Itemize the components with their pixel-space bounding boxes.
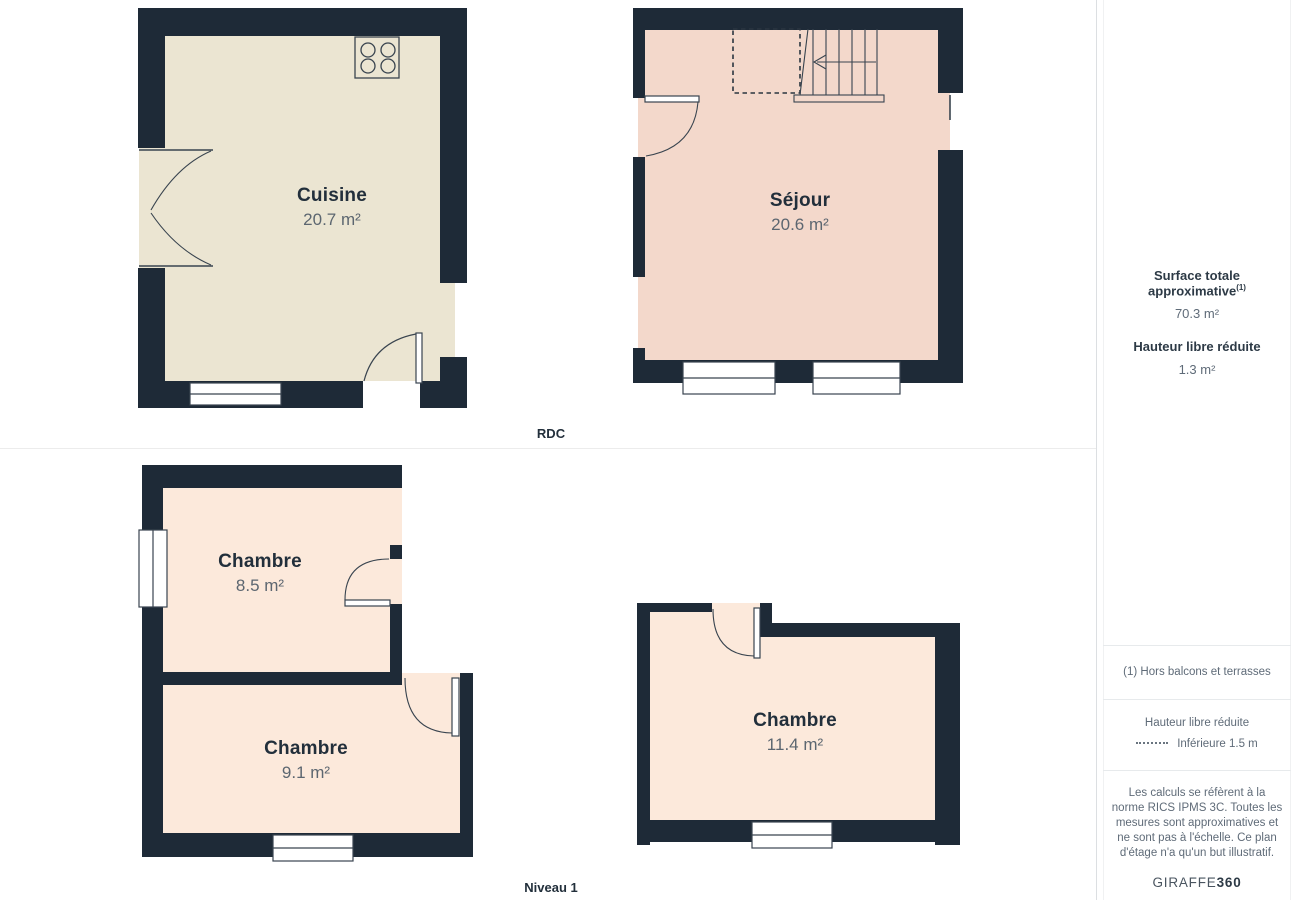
floorplan-page: Cuisine 20.7 m² Séjour 20.6 m² Chambre 8… [0, 0, 1300, 900]
divider [1103, 699, 1291, 700]
floor-section-divider [0, 448, 1097, 449]
brand-suffix: 360 [1217, 875, 1242, 890]
footnote-section: (1) Hors balcons et terrasses [1105, 666, 1289, 678]
floorplan-sejour [633, 8, 963, 394]
floor-caption-rdc: RDC [537, 426, 565, 441]
surface-total-value: 70.3 m² [1105, 306, 1289, 321]
window [139, 530, 167, 607]
floorplan-cuisine [138, 8, 467, 408]
divider [1103, 770, 1291, 771]
door-alcove [139, 148, 167, 268]
floorplans-canvas [0, 0, 1097, 900]
window [683, 362, 775, 394]
legend-row: Inférieure 1.5 m [1105, 738, 1289, 750]
floorplan-chambre-droite [637, 603, 960, 848]
surface-total-title: Surface totale approximative(1) [1105, 268, 1289, 298]
reduced-height-title: Hauteur libre réduite [1105, 339, 1289, 354]
disclaimer-section: Les calculs se réfèrent à la norme RICS … [1111, 786, 1283, 890]
summary-sidebar: Surface totale approximative(1) 70.3 m² … [1097, 0, 1300, 900]
footnote-text: (1) Hors balcons et terrasses [1105, 666, 1289, 678]
window [273, 835, 353, 861]
window [190, 383, 281, 405]
reduced-height-value: 1.3 m² [1105, 362, 1289, 377]
window [813, 362, 900, 394]
reduced-height-dotted-line-icon [1136, 741, 1168, 744]
divider [1103, 0, 1104, 900]
surface-summary: Surface totale approximative(1) 70.3 m² … [1105, 268, 1289, 377]
legend-section: Hauteur libre réduite Inférieure 1.5 m [1105, 717, 1289, 750]
brand-name: GIRAFFE [1152, 875, 1216, 890]
window [752, 822, 832, 848]
floorplan-chambres-gauche [139, 465, 473, 861]
footnote-marker: (1) [1236, 283, 1246, 292]
divider [1290, 0, 1291, 900]
legend-value: Inférieure 1.5 m [1177, 738, 1258, 750]
legend-title: Hauteur libre réduite [1105, 717, 1289, 729]
floor-caption-niveau1: Niveau 1 [524, 880, 577, 895]
divider [1103, 645, 1291, 646]
giraffe360-logo: GIRAFFE360 [1111, 875, 1283, 890]
disclaimer-text: Les calculs se réfèrent à la norme RICS … [1111, 786, 1283, 861]
